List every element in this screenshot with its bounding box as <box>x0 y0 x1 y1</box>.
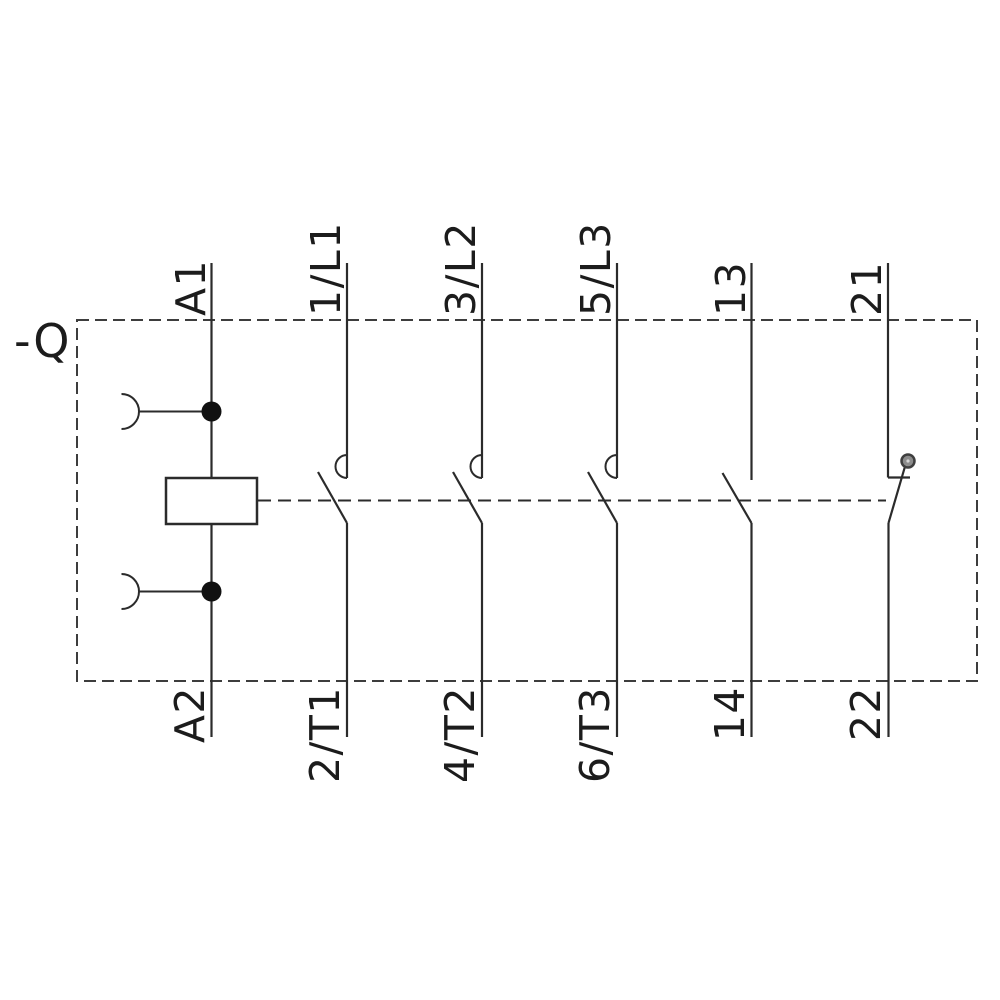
terminal-label-1l1: 1/L1 <box>304 221 348 316</box>
terminal-label-22: 22 <box>844 686 888 906</box>
pole1-contact-blade <box>318 472 347 523</box>
terminal-label-21: 21 <box>845 261 889 316</box>
terminal-label-3l2: 3/L2 <box>439 221 483 316</box>
junction-dot-bottom <box>202 582 222 602</box>
coil-pole <box>122 263 258 737</box>
coil-symbol <box>166 478 257 524</box>
pole2-fixed-contact-arc-icon <box>471 455 483 478</box>
pole3-fixed-contact-arc-icon <box>606 455 618 478</box>
terminal-label-a1: A1 <box>169 259 213 316</box>
aux-nc-pole <box>888 263 915 737</box>
aux-nc-contact-blade <box>889 467 906 524</box>
terminal-label-4t2: 4/T2 <box>438 686 482 906</box>
terminal-label-14: 14 <box>708 686 752 906</box>
coil-terminal-arc-bottom-icon <box>122 574 140 609</box>
pole1-fixed-contact-arc-icon <box>336 455 348 478</box>
terminal-label-13: 13 <box>709 261 753 316</box>
pole3-contact-blade <box>588 472 617 523</box>
aux-no-contact-blade <box>723 473 752 523</box>
aux-nc-pivot-center-dot <box>906 459 909 462</box>
junction-dot-top <box>202 402 222 422</box>
terminal-label-6t3: 6/T3 <box>573 686 617 906</box>
terminal-label-5l3: 5/L3 <box>574 221 618 316</box>
coil-terminal-arc-top-icon <box>122 394 140 429</box>
schematic-canvas: -Q <box>0 0 1000 1000</box>
terminal-label-2t1: 2/T1 <box>303 686 347 906</box>
pole2-contact-blade <box>453 472 482 523</box>
terminal-label-a2: A2 <box>168 686 212 906</box>
